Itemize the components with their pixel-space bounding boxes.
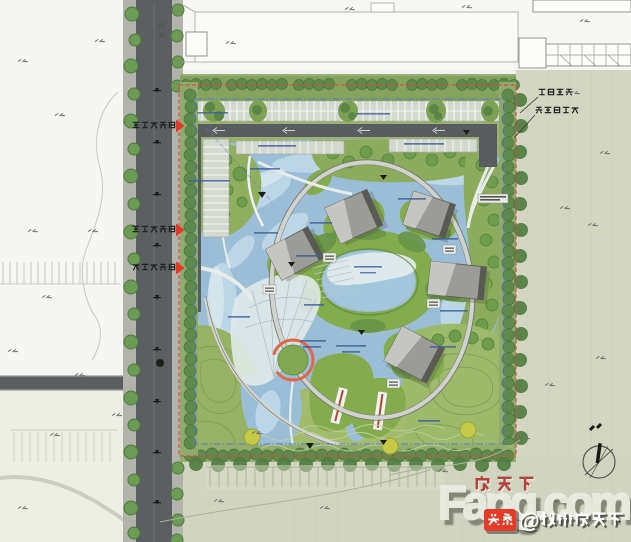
svg-text:@: @ <box>519 510 539 533</box>
